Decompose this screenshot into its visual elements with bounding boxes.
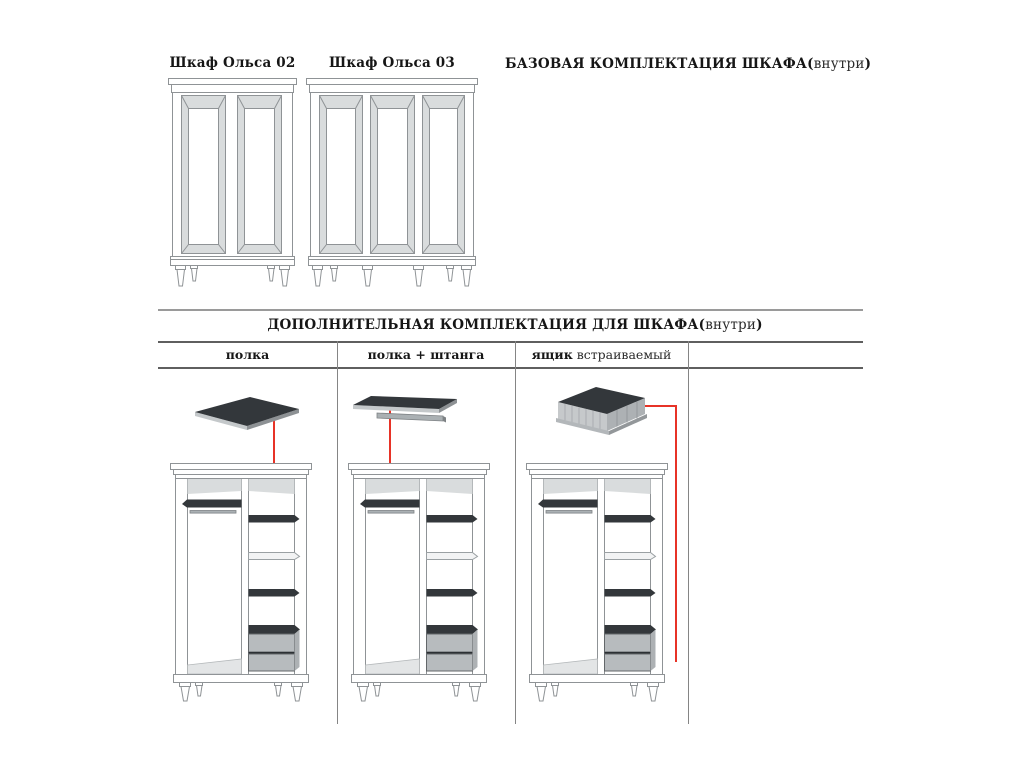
column-divider-3 [688,341,689,724]
column-divider-1 [337,341,338,724]
catalog-page: Шкаф Ольса 02 Шкаф Ольса 03 БАЗОВАЯ КОМП… [0,0,1024,768]
wardrobe-02-illustration [168,76,297,290]
additional-title-main: ДОПОЛНИТЕЛЬНАЯ КОМПЛЕКТАЦИЯ ДЛЯ ШКАФА [267,317,698,333]
basic-title-main: БАЗОВАЯ КОМПЛЕКТАЦИЯ ШКАФА [505,56,807,72]
column-header-shelf: полка [158,342,337,367]
drawer-icon [552,384,650,436]
additional-section-title: ДОПОЛНИТЕЛЬНАЯ КОМПЛЕКТАЦИЯ ДЛЯ ШКАФА(вн… [165,317,865,333]
table-header-bottom-line [158,367,863,369]
column-header-drawer: ящик встраиваемый [515,342,688,367]
drawer-annotation-line-vertical [675,405,677,662]
wardrobe-03-illustration [306,76,478,290]
wardrobe-03-label: Шкаф Ольса 03 [306,55,478,71]
column-header-shelf-rod: полка + штанга [337,342,515,367]
wardrobe-interior-shelf-illustration [170,458,312,704]
table-top-line [158,309,863,311]
basic-section-title: БАЗОВАЯ КОМПЛЕКТАЦИЯ ШКАФА(внутри) [505,56,871,72]
wardrobe-interior-shelf-rod-illustration [348,458,490,704]
column-divider-2 [515,341,516,724]
column-header-empty [688,342,863,367]
shelf-rod-icon [349,392,461,426]
basic-title-inner: внутри [814,56,865,72]
wardrobe-interior-drawer-illustration [526,458,668,704]
additional-title-inner: внутри [705,317,756,333]
shelf-icon [192,395,302,433]
wardrobe-02-label: Шкаф Ольса 02 [168,55,297,71]
